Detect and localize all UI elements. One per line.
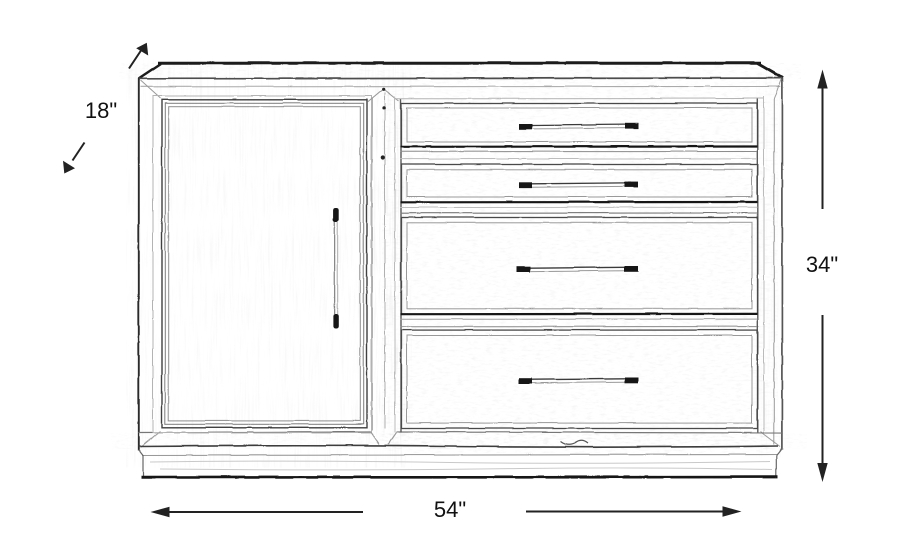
svg-text:34": 34": [806, 252, 838, 277]
svg-text:18": 18": [85, 98, 117, 123]
svg-text:54": 54": [434, 497, 466, 522]
